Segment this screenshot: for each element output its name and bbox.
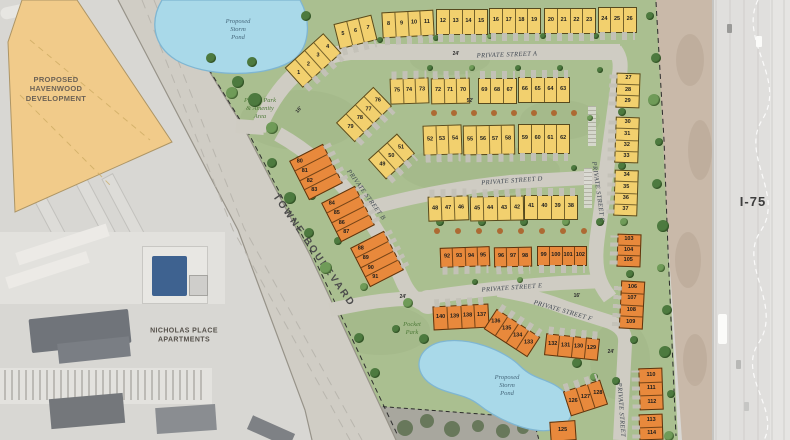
pocket-park-label: Pocket Park xyxy=(403,321,421,337)
lot-number: 2 xyxy=(307,62,310,68)
tree-icon xyxy=(652,179,662,189)
lot-number: 35 xyxy=(623,185,629,191)
driveway-strip xyxy=(465,154,513,163)
lot-60: 60 xyxy=(531,125,544,153)
lot-number: 17 xyxy=(506,18,512,24)
lot-number: 31 xyxy=(624,132,630,138)
shrub-icon xyxy=(531,110,537,116)
tree-icon xyxy=(360,283,368,291)
lot-99: 99 xyxy=(538,247,549,265)
lot-number: 130 xyxy=(574,345,583,351)
lot-30: 30 xyxy=(616,118,638,129)
lot-number: 53 xyxy=(439,137,445,143)
lot-97: 97 xyxy=(506,248,518,266)
tree-icon xyxy=(646,12,654,20)
lot-block: 484746 xyxy=(427,195,468,221)
lot-number: 29 xyxy=(625,98,631,104)
driveway-strip xyxy=(472,188,522,197)
lot-block: 16171819 xyxy=(489,8,541,34)
lot-61: 61 xyxy=(544,125,557,153)
lot-number: 19 xyxy=(531,18,537,24)
lot-block: 12131415 xyxy=(436,9,488,35)
lot-17: 17 xyxy=(502,9,515,33)
lot-number: 46 xyxy=(458,205,464,211)
lot-number: 20 xyxy=(548,18,554,24)
lot-number: 72 xyxy=(434,88,440,94)
lot-125: 125 xyxy=(550,421,575,440)
driveway-strip xyxy=(608,74,617,105)
tree-icon xyxy=(648,94,660,106)
lot-block: 59606162 xyxy=(518,124,570,154)
lot-111: 111 xyxy=(640,381,662,395)
lot-number: 56 xyxy=(480,137,486,143)
tree-icon xyxy=(472,279,478,285)
lot-96: 96 xyxy=(495,248,506,266)
lot-71: 71 xyxy=(443,79,456,103)
tree-icon xyxy=(206,53,216,63)
lot-number: 23 xyxy=(586,18,592,24)
driveway-strip xyxy=(546,33,594,41)
shrub-icon xyxy=(539,228,545,234)
lot-number: 5 xyxy=(341,32,344,38)
lot-number: 25 xyxy=(614,17,620,23)
lot-number: 97 xyxy=(510,254,516,260)
lot-94: 94 xyxy=(464,248,477,266)
tree-icon xyxy=(469,65,475,71)
tree-icon xyxy=(232,76,244,88)
shrub-icon xyxy=(518,228,524,234)
tree-icon xyxy=(620,218,628,226)
lot-number: 22 xyxy=(573,18,579,24)
lot-number: 45 xyxy=(474,206,480,212)
lot-66: 66 xyxy=(519,78,531,102)
tree-icon xyxy=(284,192,296,204)
lot-number: 55 xyxy=(467,138,473,144)
lot-number: 81 xyxy=(302,169,308,175)
lot-block: 125 xyxy=(549,420,576,440)
tree-icon xyxy=(659,346,671,358)
lot-number: 103 xyxy=(625,237,634,243)
lot-number: 4 xyxy=(326,44,329,50)
tree-icon xyxy=(517,277,523,283)
lot-block: 45444342 xyxy=(470,195,524,221)
shrub-icon xyxy=(431,110,437,116)
shrub-icon xyxy=(471,110,477,116)
lot-number: 139 xyxy=(450,315,459,321)
lot-number: 43 xyxy=(501,205,507,211)
lot-48: 48 xyxy=(428,197,441,220)
lot-28: 28 xyxy=(617,84,639,96)
lot-67: 67 xyxy=(503,79,516,103)
lot-129: 129 xyxy=(584,338,599,359)
lot-number: 73 xyxy=(419,88,425,94)
driveway-strip xyxy=(520,70,568,78)
lot-number: 58 xyxy=(505,137,511,143)
guest-parking-stalls xyxy=(588,106,596,146)
lot-37: 37 xyxy=(614,203,636,215)
lot-number: 60 xyxy=(535,136,541,142)
lot-block: 55565758 xyxy=(463,125,516,156)
lot-number: 92 xyxy=(444,255,450,260)
lot-block: 136135134133 xyxy=(484,309,541,357)
driveway-strip xyxy=(391,70,426,79)
shrub-icon xyxy=(581,228,587,234)
tree-icon xyxy=(427,65,433,71)
lot-47: 47 xyxy=(441,196,455,219)
tree-icon xyxy=(630,336,638,344)
lot-14: 14 xyxy=(462,10,475,34)
lot-number: 13 xyxy=(453,19,459,25)
lot-number: 57 xyxy=(492,137,498,143)
tree-icon xyxy=(247,57,257,67)
lot-31: 31 xyxy=(616,128,638,140)
shrub-icon xyxy=(511,110,517,116)
lot-number: 101 xyxy=(564,253,573,259)
lot-number: 134 xyxy=(513,334,522,340)
havenwood-parcel-label: PROPOSED HAVENWOOD DEVELOPMENT xyxy=(26,75,86,103)
lot-number: 26 xyxy=(627,17,633,23)
lot-114: 114 xyxy=(640,426,662,439)
lot-138: 138 xyxy=(460,305,475,328)
street-label: PRIVATE STREET A xyxy=(477,50,538,59)
lot-73: 73 xyxy=(414,78,428,102)
lot-number: 38 xyxy=(568,204,574,210)
lot-110: 110 xyxy=(639,369,661,382)
lot-block: 891011 xyxy=(381,10,434,39)
lot-number: 127 xyxy=(580,395,589,401)
lot-number: 95 xyxy=(480,254,486,260)
storm-pond-lower-label: Proposed Storm Pond xyxy=(495,374,520,398)
lot-number: 112 xyxy=(647,400,656,406)
tree-icon xyxy=(370,368,380,378)
lot-block: 126127128 xyxy=(562,380,607,417)
lot-number: 87 xyxy=(343,230,349,236)
lot-number: 80 xyxy=(297,159,303,165)
tree-icon xyxy=(618,108,626,116)
lot-25: 25 xyxy=(610,8,623,32)
lot-number: 1 xyxy=(297,70,300,75)
lot-103: 103 xyxy=(618,234,640,244)
lot-number: 102 xyxy=(576,253,585,259)
lot-number: 109 xyxy=(626,320,635,326)
tree-icon xyxy=(392,325,400,333)
lot-59: 59 xyxy=(519,125,531,153)
driveway-strip xyxy=(632,416,641,438)
lot-number: 125 xyxy=(558,428,567,434)
driveway-strip xyxy=(539,265,585,273)
shrub-icon xyxy=(476,228,482,234)
lot-63: 63 xyxy=(556,78,569,102)
lot-55: 55 xyxy=(464,126,476,154)
dimension-label: 24' xyxy=(400,294,407,300)
lot-number: 69 xyxy=(481,88,487,94)
dimension-label: 16' xyxy=(574,293,581,299)
lot-56: 56 xyxy=(476,126,489,154)
lot-number: 100 xyxy=(551,253,560,259)
lot-block: 106107108109 xyxy=(619,280,645,329)
lot-number: 135 xyxy=(502,327,511,333)
lot-139: 139 xyxy=(446,306,461,329)
driveway-strip xyxy=(496,266,530,275)
lot-number: 89 xyxy=(363,256,369,262)
lot-block: 242526 xyxy=(598,7,637,33)
shrub-icon xyxy=(491,110,497,116)
lot-number: 65 xyxy=(535,87,541,93)
lot-22: 22 xyxy=(570,9,583,33)
lot-number: 88 xyxy=(358,246,364,252)
lot-block: 113114 xyxy=(639,414,664,440)
lot-number: 66 xyxy=(522,87,528,93)
lot-number: 96 xyxy=(498,254,504,260)
lot-35: 35 xyxy=(615,181,637,193)
lot-54: 54 xyxy=(447,125,461,153)
lot-number: 11 xyxy=(424,20,430,26)
nicholas-place-label: NICHOLAS PLACE APARTMENTS xyxy=(150,327,218,345)
tree-icon xyxy=(267,158,277,168)
dimension-label: 52' xyxy=(467,98,474,104)
lot-105: 105 xyxy=(617,254,639,265)
lot-20: 20 xyxy=(545,9,557,33)
tree-icon xyxy=(626,270,634,278)
tree-icon xyxy=(664,431,674,440)
lot-number: 48 xyxy=(432,206,438,212)
tree-icon xyxy=(657,220,669,232)
lot-93: 93 xyxy=(452,248,465,266)
lot-41: 41 xyxy=(525,196,537,219)
lot-block: 727170 xyxy=(430,78,469,105)
lot-65: 65 xyxy=(531,78,544,102)
lot-102: 102 xyxy=(574,247,586,265)
driveway-strip xyxy=(442,265,488,275)
driveway-strip xyxy=(385,35,433,46)
lot-11: 11 xyxy=(420,11,434,36)
driveway-strip xyxy=(429,188,466,197)
lot-64: 64 xyxy=(544,78,557,102)
dimension-label: 16' xyxy=(295,105,304,114)
lot-43: 43 xyxy=(496,196,510,219)
lot-number: 129 xyxy=(587,346,596,352)
lot-number: 138 xyxy=(463,314,472,320)
lot-number: 42 xyxy=(514,205,520,211)
guest-parking-stalls xyxy=(584,168,592,208)
lot-number: 114 xyxy=(647,430,656,436)
lot-113: 113 xyxy=(640,415,662,427)
lot-number: 16 xyxy=(493,18,499,24)
lot-number: 32 xyxy=(624,143,630,149)
lot-number: 51 xyxy=(397,145,403,151)
lot-number: 67 xyxy=(507,88,513,94)
lot-number: 79 xyxy=(347,125,353,131)
lot-block: 132131130129 xyxy=(544,333,600,361)
lot-36: 36 xyxy=(615,192,637,204)
tree-icon xyxy=(657,264,665,272)
lot-number: 33 xyxy=(623,154,629,160)
lot-109: 109 xyxy=(620,316,643,329)
lot-number: 63 xyxy=(560,87,566,93)
lot-100: 100 xyxy=(549,247,561,265)
lot-block: 272829 xyxy=(615,72,640,107)
lot-block: 567 xyxy=(333,15,377,50)
lot-68: 68 xyxy=(490,79,503,103)
street-label: PRIVATE STREET C xyxy=(590,161,605,223)
tree-icon xyxy=(304,228,314,238)
driveway-strip xyxy=(526,188,576,196)
tree-icon xyxy=(226,87,238,99)
tree-icon xyxy=(419,334,429,344)
lot-140: 140 xyxy=(433,307,447,330)
lot-number: 140 xyxy=(436,315,445,321)
lot-92: 92 xyxy=(441,248,453,266)
lot-number: 99 xyxy=(541,253,547,259)
shrub-icon xyxy=(451,110,457,116)
lot-62: 62 xyxy=(556,125,569,153)
shrub-icon xyxy=(455,228,461,234)
driveway-strip xyxy=(600,32,635,40)
street-label: PRIVATE STREET xyxy=(616,383,627,438)
lot-98: 98 xyxy=(518,248,530,266)
lot-9: 9 xyxy=(394,12,408,37)
tree-icon xyxy=(354,333,364,343)
lot-number: 10 xyxy=(411,21,417,27)
lot-number: 136 xyxy=(491,320,500,326)
lot-number: 71 xyxy=(447,88,453,94)
lot-number: 64 xyxy=(547,87,553,93)
lot-number: 41 xyxy=(528,204,534,210)
lot-number: 27 xyxy=(625,76,631,82)
lot-45: 45 xyxy=(471,197,484,220)
lot-number: 6 xyxy=(353,29,356,35)
lot-75: 75 xyxy=(390,79,403,103)
lot-block: 80818283 xyxy=(289,144,343,200)
shrub-icon xyxy=(551,110,557,116)
tree-icon xyxy=(571,165,577,171)
lot-number: 104 xyxy=(624,247,633,253)
site-plan-canvas: PROPOSED HAVENWOOD DEVELOPMENT NICHOLAS … xyxy=(0,0,790,440)
lot-block: 88899091 xyxy=(350,231,404,287)
lot-number: 76 xyxy=(375,98,381,104)
lot-number: 128 xyxy=(592,391,601,397)
lot-block: 110111112 xyxy=(638,368,663,411)
lot-112: 112 xyxy=(640,395,662,409)
lot-57: 57 xyxy=(488,126,501,154)
lot-27: 27 xyxy=(617,73,639,84)
lot-number: 40 xyxy=(541,204,547,210)
lot-13: 13 xyxy=(449,10,462,34)
lot-block: 79787776 xyxy=(336,86,392,142)
driveway-strip xyxy=(610,235,619,264)
tree-icon xyxy=(597,67,603,73)
tree-icon xyxy=(320,262,332,274)
lot-12: 12 xyxy=(437,10,449,34)
lot-block: 99100101102 xyxy=(537,246,587,266)
lot-number: 34 xyxy=(624,173,630,179)
shrub-icon xyxy=(560,228,566,234)
lot-44: 44 xyxy=(483,197,497,220)
lot-number: 24 xyxy=(601,17,607,23)
dimension-label: 24' xyxy=(453,51,460,57)
lot-number: 84 xyxy=(329,201,335,207)
lot-number: 68 xyxy=(494,88,500,94)
lot-number: 113 xyxy=(646,418,655,424)
lot-number: 62 xyxy=(560,136,566,142)
lot-block: 757473 xyxy=(389,77,429,104)
lot-number: 137 xyxy=(477,313,486,319)
lot-number: 133 xyxy=(523,341,532,347)
lot-number: 59 xyxy=(522,136,528,142)
driveway-strip xyxy=(432,71,467,80)
lot-29: 29 xyxy=(616,95,638,107)
lot-53: 53 xyxy=(435,126,449,154)
lot-number: 50 xyxy=(388,153,394,159)
street-label: PRIVATE STREET F xyxy=(533,299,593,322)
lot-18: 18 xyxy=(515,9,528,33)
lot-number: 54 xyxy=(452,137,458,143)
lot-number: 3 xyxy=(316,53,319,59)
lot-19: 19 xyxy=(527,9,540,33)
driveway-strip xyxy=(438,34,486,42)
tree-icon xyxy=(572,358,582,368)
lot-15: 15 xyxy=(474,10,487,34)
lot-39: 39 xyxy=(551,196,564,219)
lot-block: 140139138137 xyxy=(432,304,489,331)
lot-95: 95 xyxy=(476,247,489,265)
lot-number: 8 xyxy=(387,22,390,28)
lot-number: 91 xyxy=(372,275,378,281)
lot-number: 21 xyxy=(561,18,567,24)
lot-number: 37 xyxy=(622,207,628,213)
lot-block: 34353637 xyxy=(613,170,639,217)
lot-23: 23 xyxy=(582,9,595,33)
lot-58: 58 xyxy=(501,126,514,154)
lot-38: 38 xyxy=(564,196,577,219)
tree-icon xyxy=(266,122,278,134)
tree-icon xyxy=(667,390,675,398)
shrub-icon xyxy=(571,110,577,116)
lot-number: 111 xyxy=(647,386,656,392)
driveway-strip xyxy=(606,171,615,213)
lot-10: 10 xyxy=(407,11,421,36)
lot-number: 12 xyxy=(440,19,446,25)
lot-number: 39 xyxy=(555,204,561,210)
lot-number: 82 xyxy=(307,179,313,185)
lot-16: 16 xyxy=(490,9,502,33)
lot-number: 107 xyxy=(628,296,637,302)
lot-26: 26 xyxy=(623,8,636,32)
tree-icon xyxy=(651,53,661,63)
lot-33: 33 xyxy=(615,150,637,162)
driveway-strip xyxy=(425,153,460,162)
lot-72: 72 xyxy=(431,79,443,103)
lot-number: 85 xyxy=(334,211,340,217)
lot-number: 44 xyxy=(487,205,493,211)
lot-number: 108 xyxy=(627,308,636,314)
lot-number: 126 xyxy=(568,399,577,405)
lot-number: 75 xyxy=(393,89,399,95)
lot-block: 696867 xyxy=(478,78,517,104)
tree-icon xyxy=(587,115,593,121)
lot-24: 24 xyxy=(599,8,611,32)
lot-number: 14 xyxy=(465,19,471,25)
lot-number: 131 xyxy=(561,344,570,350)
lot-block: 495051 xyxy=(367,133,414,179)
dimension-label: 24' xyxy=(608,349,615,355)
lot-number: 83 xyxy=(311,188,317,194)
lot-number: 77 xyxy=(366,107,372,113)
driveway-strip xyxy=(480,71,515,79)
lot-52: 52 xyxy=(423,126,436,154)
lot-block: 30313233 xyxy=(614,117,640,164)
lot-block: 525354 xyxy=(422,124,462,155)
